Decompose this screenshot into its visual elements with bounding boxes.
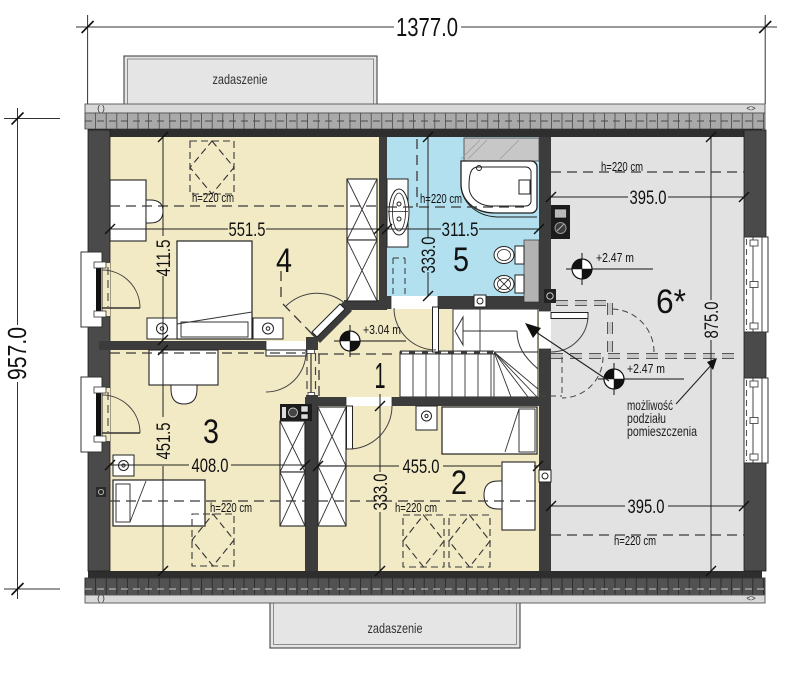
svg-text:h=220 cm: h=220 cm xyxy=(210,501,252,515)
svg-text:1: 1 xyxy=(375,355,386,396)
svg-text:pomieszczenia: pomieszczenia xyxy=(627,423,697,439)
svg-text:551.5: 551.5 xyxy=(229,220,266,241)
svg-text:455.0: 455.0 xyxy=(403,457,440,478)
svg-text:<>: <> xyxy=(746,594,756,603)
svg-text:395.0: 395.0 xyxy=(628,497,665,518)
svg-text:h=220 cm: h=220 cm xyxy=(395,501,437,515)
svg-text:451.5: 451.5 xyxy=(154,423,175,460)
svg-text:5: 5 xyxy=(453,241,469,279)
svg-text:+2.47 m: +2.47 m xyxy=(596,250,634,265)
svg-text:2: 2 xyxy=(451,464,467,502)
svg-text:( ): ( ) xyxy=(97,594,105,603)
svg-text:3: 3 xyxy=(203,413,219,451)
svg-text:4: 4 xyxy=(276,242,292,280)
svg-text:zadaszenie: zadaszenie xyxy=(213,71,268,87)
svg-text:h=220 cm: h=220 cm xyxy=(614,534,656,548)
svg-text:1377.0: 1377.0 xyxy=(396,12,458,42)
svg-text:zadaszenie: zadaszenie xyxy=(368,620,423,636)
svg-text:311.5: 311.5 xyxy=(442,220,479,241)
svg-text:6*: 6* xyxy=(656,283,686,321)
svg-text:+2.47 m: +2.47 m xyxy=(627,361,665,376)
svg-text:333.0: 333.0 xyxy=(371,474,392,511)
svg-text:( ): ( ) xyxy=(97,104,105,113)
svg-text:<>: <> xyxy=(746,104,756,113)
svg-text:h=220 cm: h=220 cm xyxy=(601,160,643,174)
svg-text:333.0: 333.0 xyxy=(419,237,440,274)
svg-text:+3.04 m: +3.04 m xyxy=(363,322,401,337)
svg-text:408.0: 408.0 xyxy=(192,456,229,477)
svg-text:395.0: 395.0 xyxy=(630,188,667,209)
svg-text:875.0: 875.0 xyxy=(702,302,723,339)
svg-text:h=220 cm: h=220 cm xyxy=(420,192,462,206)
svg-text:h=220 cm: h=220 cm xyxy=(192,191,234,205)
svg-text:957.0: 957.0 xyxy=(2,327,32,380)
svg-text:411.5: 411.5 xyxy=(154,240,175,277)
